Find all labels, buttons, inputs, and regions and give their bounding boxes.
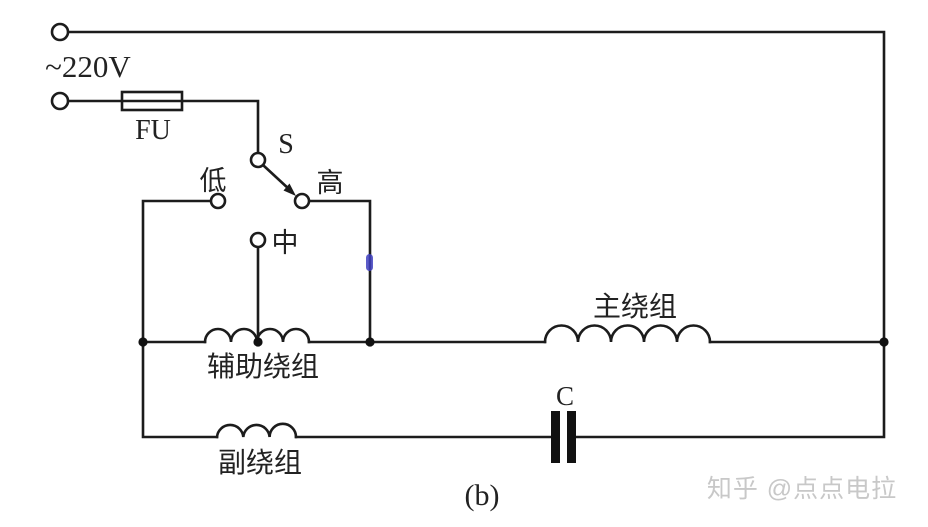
blue-mark <box>366 254 373 271</box>
fuse-label: FU <box>135 115 171 146</box>
wire-high-contact-drop <box>309 201 370 342</box>
switch-position-low-label: 低 <box>200 166 227 196</box>
switch-arm <box>264 166 291 191</box>
switch-high-contact <box>295 194 309 208</box>
junction-dot-center-tap <box>253 337 262 346</box>
secondary-winding-coil <box>217 424 296 437</box>
capacitor-plate-right <box>567 411 576 463</box>
wire-low-contact-left-rail <box>143 201 217 437</box>
switch-pivot-contact <box>251 153 265 167</box>
wire-top-right-loop <box>70 32 884 437</box>
figure-caption: (b) <box>465 479 500 512</box>
auxiliary-winding-label: 辅助绕组 <box>207 351 319 383</box>
watermark: 知乎 @点点电拉 <box>707 475 897 503</box>
main-winding-label: 主绕组 <box>593 291 677 323</box>
junction-dot-left <box>138 337 147 346</box>
power-supply-label: ~220V <box>45 49 131 84</box>
circuit-svg: ~220V FU S 低 高 中 主绕组 辅助绕组 副绕组 C (b) 知乎 @… <box>0 0 928 527</box>
switch-label: S <box>278 129 294 160</box>
switch-low-contact <box>211 194 225 208</box>
supply-terminal-top <box>52 24 68 40</box>
capacitor-label: C <box>556 381 574 411</box>
secondary-winding-label: 副绕组 <box>218 447 302 479</box>
switch-mid-contact <box>251 233 265 247</box>
junction-dot-right <box>879 337 888 346</box>
circuit-diagram: ~220V FU S 低 高 中 主绕组 辅助绕组 副绕组 C (b) 知乎 @… <box>0 0 928 527</box>
capacitor-plate-left <box>551 411 560 463</box>
junction-dot-high-branch <box>365 337 374 346</box>
switch-position-mid-label: 中 <box>272 228 299 258</box>
switch-position-high-label: 高 <box>317 168 344 198</box>
supply-terminal-bottom <box>52 93 68 109</box>
main-winding-coil <box>545 326 710 342</box>
